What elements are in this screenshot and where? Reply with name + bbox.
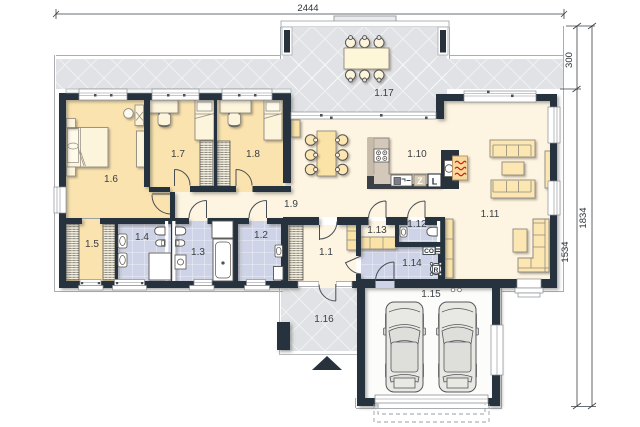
svg-text:1.17: 1.17 [374,88,394,99]
svg-text:1.7: 1.7 [171,149,185,160]
svg-text:Z: Z [417,176,423,186]
svg-text:1.2: 1.2 [254,230,268,241]
svg-text:1534: 1534 [560,241,571,262]
svg-text:1.10: 1.10 [407,149,427,160]
svg-text:1.11: 1.11 [481,209,500,220]
svg-text:L: L [432,177,438,187]
svg-text:1.5: 1.5 [85,239,99,250]
svg-text:1.8: 1.8 [246,149,260,160]
svg-text:1.4: 1.4 [135,232,149,243]
svg-text:1.9: 1.9 [284,199,298,210]
svg-text:1.6: 1.6 [104,174,118,185]
svg-text:1.15: 1.15 [421,289,441,300]
svg-text:300: 300 [564,52,575,68]
svg-text:1.14: 1.14 [402,258,422,269]
svg-text:CO: CO [424,248,434,255]
svg-text:1.1: 1.1 [319,247,333,258]
svg-text:1.3: 1.3 [191,247,205,258]
svg-text:R: R [434,267,439,274]
svg-text:1834: 1834 [578,207,589,228]
svg-text:1.13: 1.13 [367,225,387,236]
svg-text:1.16: 1.16 [314,314,334,325]
svg-text:1.12: 1.12 [407,219,427,230]
svg-text:2444: 2444 [297,3,318,14]
